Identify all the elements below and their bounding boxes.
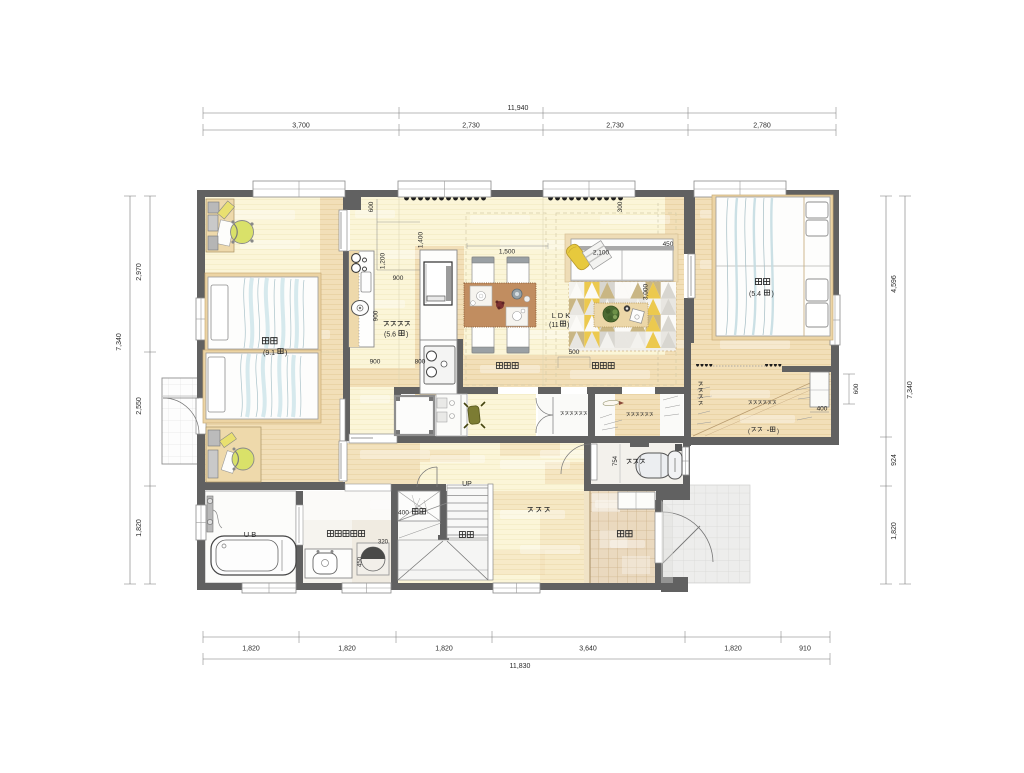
svg-text:2,780: 2,780 — [753, 123, 771, 130]
svg-text:1,820: 1,820 — [136, 519, 143, 537]
svg-text:1,820: 1,820 — [242, 646, 260, 653]
svg-text:1,820: 1,820 — [338, 646, 356, 653]
svg-text:): ) — [772, 291, 774, 298]
svg-text:450: 450 — [663, 241, 674, 248]
svg-text:(: ( — [748, 429, 750, 435]
svg-text:400: 400 — [398, 510, 409, 517]
svg-text:1,500: 1,500 — [499, 249, 516, 256]
svg-text:1,820: 1,820 — [891, 522, 898, 540]
svg-text:800: 800 — [415, 359, 426, 366]
svg-text:1,820: 1,820 — [435, 646, 453, 653]
svg-text:): ) — [777, 429, 779, 435]
svg-text:11,940: 11,940 — [508, 105, 529, 112]
svg-text:(5.6: (5.6 — [384, 332, 396, 339]
svg-text:1,400: 1,400 — [418, 231, 425, 248]
svg-text:7,340: 7,340 — [907, 381, 914, 399]
svg-text:(5.4: (5.4 — [749, 291, 761, 298]
svg-text:): ) — [567, 322, 569, 329]
svg-text:3,640: 3,640 — [579, 646, 597, 653]
svg-text:600: 600 — [853, 383, 860, 394]
svg-text:900: 900 — [373, 310, 380, 321]
svg-text:2,970: 2,970 — [136, 263, 143, 281]
svg-text:1,200: 1,200 — [380, 252, 387, 269]
svg-text:L D K: L D K — [552, 311, 570, 320]
svg-text:450: 450 — [358, 556, 364, 567]
svg-text:3,700: 3,700 — [292, 123, 310, 130]
svg-text:900: 900 — [393, 275, 404, 282]
svg-text:3,000: 3,000 — [643, 283, 650, 300]
svg-text:2,100: 2,100 — [593, 250, 610, 257]
svg-text:2,550: 2,550 — [136, 397, 143, 415]
svg-text:4,596: 4,596 — [891, 275, 898, 293]
svg-text:400: 400 — [817, 406, 828, 413]
svg-text:11,830: 11,830 — [510, 663, 531, 670]
svg-text:): ) — [406, 332, 408, 339]
svg-text:(9.1: (9.1 — [263, 350, 275, 357]
svg-text:300: 300 — [617, 201, 624, 212]
svg-text:(11: (11 — [549, 322, 559, 329]
svg-text:1,820: 1,820 — [724, 646, 742, 653]
svg-text:320: 320 — [378, 540, 389, 546]
svg-text:754: 754 — [613, 455, 619, 466]
svg-text:900: 900 — [370, 359, 381, 366]
svg-text:600: 600 — [368, 201, 375, 212]
svg-text:2,730: 2,730 — [606, 123, 624, 130]
svg-text:924: 924 — [891, 454, 898, 466]
svg-text:): ) — [285, 350, 287, 357]
svg-text:7,340: 7,340 — [116, 333, 123, 351]
svg-text:2,730: 2,730 — [462, 123, 480, 130]
svg-text:910: 910 — [799, 646, 811, 653]
svg-text:500: 500 — [569, 349, 580, 356]
svg-text:U B: U B — [244, 530, 257, 539]
svg-text:UP: UP — [462, 481, 472, 488]
